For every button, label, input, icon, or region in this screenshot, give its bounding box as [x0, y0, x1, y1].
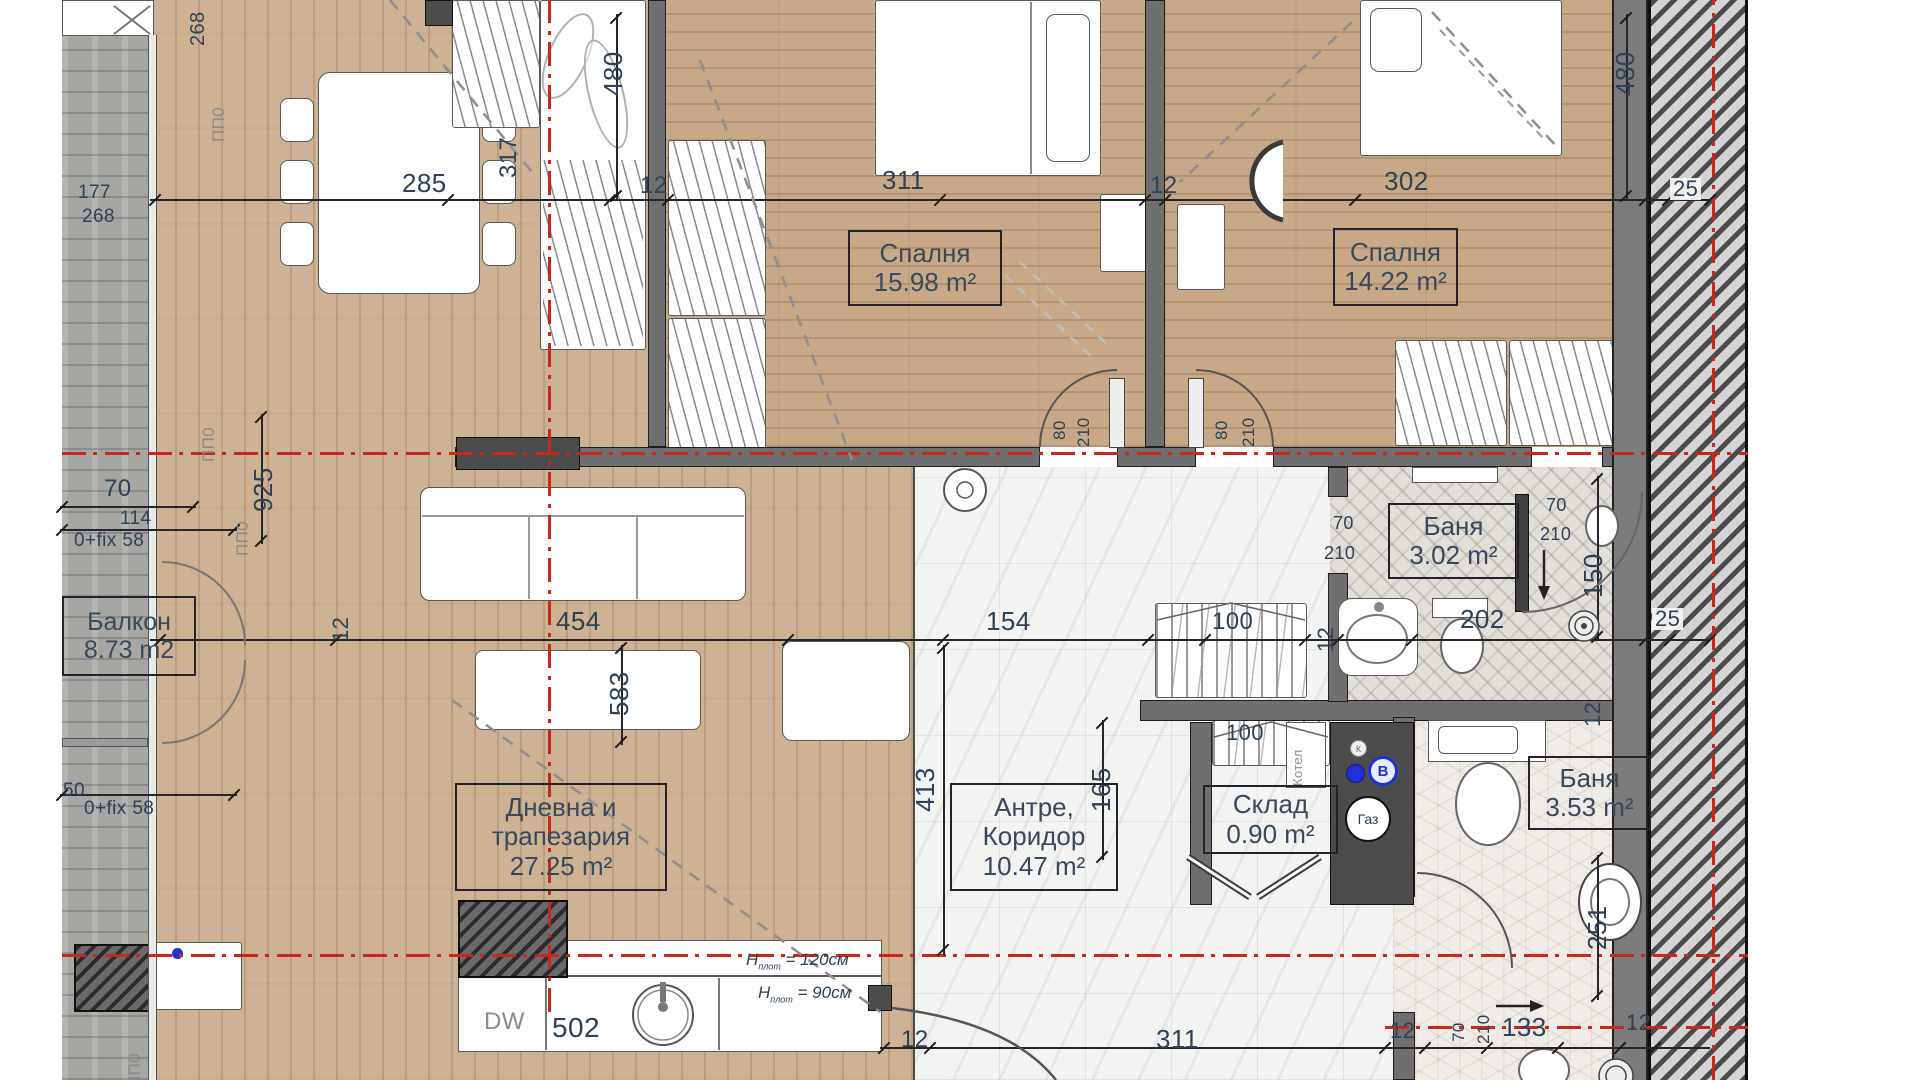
dim-label: 12 — [901, 1028, 929, 1052]
room-label-bath-1: Баня3.02 m² — [1388, 503, 1519, 579]
bed-fold-line — [1030, 2, 1032, 174]
chair — [482, 222, 516, 266]
dim-line-v — [1626, 14, 1628, 200]
room-label-line: 3.53 m² — [1530, 793, 1649, 822]
counter-divider — [718, 978, 720, 1050]
dim-label: 70 — [1546, 496, 1567, 514]
dim-label: 210 — [1075, 417, 1092, 447]
closet — [668, 140, 766, 316]
room-label-storage: Склад0.90 m² — [1203, 785, 1338, 854]
shelf-hatch — [543, 160, 643, 346]
dim-label: 70 — [1333, 514, 1354, 532]
balcony-box — [62, 0, 154, 36]
wall-living-bedroom1 — [648, 0, 666, 447]
dim-label: 0+fix 58 — [84, 799, 154, 818]
cabinet — [452, 0, 540, 128]
dim-label: ПП0 — [126, 1053, 143, 1080]
dim-line — [150, 199, 1710, 201]
dim-label: 12 — [1390, 1020, 1415, 1042]
balcony-divider — [62, 738, 148, 747]
shaft-wall-hatched — [1648, 0, 1748, 1080]
wall-cap — [425, 0, 453, 26]
dim-label: 12 — [1626, 1012, 1651, 1034]
k-valve-label: К — [1356, 744, 1361, 754]
dim-label: 311 — [882, 167, 925, 193]
dim-label: 480 — [1612, 51, 1638, 96]
room-label-line: 8.73 m2 — [64, 636, 194, 664]
dim-label: 150 — [1580, 553, 1606, 598]
dim-label: 100 — [1212, 610, 1253, 634]
valve-dot — [1346, 764, 1365, 783]
wardrobe — [1509, 340, 1617, 446]
water-valve-label: В — [1378, 763, 1389, 780]
sofa-back-line — [422, 515, 744, 517]
wardrobe — [1395, 340, 1507, 446]
room-label-balcony: Балкон8.73 m2 — [62, 596, 196, 676]
kitchen-column — [458, 900, 568, 978]
dim-label: ПП0 — [210, 107, 227, 142]
room-label-line: трапезария — [457, 822, 665, 851]
room-label-line: 15.98 m² — [850, 268, 1000, 297]
dim-label: 251 — [1584, 905, 1610, 950]
room-label-line: Склад — [1205, 790, 1336, 819]
chair — [280, 222, 314, 266]
dim-label: 80 — [1051, 420, 1068, 440]
toilet-bowl-bath2 — [1455, 762, 1521, 846]
room-label-line: Спалня — [850, 239, 1000, 268]
sofa-cushion-line — [636, 517, 638, 599]
room-label-line: Спалня — [1335, 238, 1456, 267]
dim-label: 583 — [606, 671, 632, 716]
pillow — [1370, 8, 1422, 72]
dim-line-v — [616, 14, 618, 200]
dim-label: 133 — [1502, 1014, 1547, 1040]
dim-label: 502 — [552, 1014, 600, 1042]
desk — [1177, 204, 1225, 290]
room-label-line: Коридор — [952, 822, 1116, 851]
dim-label: 114 — [120, 509, 152, 528]
door-leaf-bedroom1 — [1109, 378, 1125, 448]
room-label-line: Баня — [1530, 764, 1649, 793]
dim-label: 12 — [640, 174, 668, 198]
dim-label: ПП0 — [200, 427, 217, 462]
dim-line — [150, 639, 1710, 641]
height-note: Hплот = 120см — [746, 950, 849, 971]
nightstand — [1100, 194, 1148, 272]
axis-red-vertical — [1712, 0, 1715, 1080]
dim-label: 317 — [497, 137, 521, 178]
room-label-bath-2: Баня3.53 m² — [1528, 756, 1651, 830]
dim-line — [880, 1047, 1710, 1049]
wall-bath1-left — [1328, 467, 1348, 497]
room-label-line: 14.22 m² — [1335, 267, 1456, 296]
sofa — [420, 487, 746, 601]
dim-label: ПП0 — [234, 521, 251, 556]
dim-label: 12 — [1150, 174, 1178, 198]
room-label-line: 10.47 m² — [952, 852, 1116, 881]
dim-label: 302 — [1384, 168, 1429, 194]
room-label-line: Балкон — [64, 608, 194, 636]
room-label-line: 0.90 m² — [1205, 820, 1336, 849]
side-table — [782, 641, 910, 741]
dim-label: 25 — [1652, 608, 1683, 630]
gas-label: Газ — [1358, 811, 1379, 827]
dim-label: Котел — [1291, 749, 1304, 786]
vanity-basin — [1438, 726, 1518, 754]
dim-label: 311 — [1156, 1026, 1199, 1052]
sink-oval — [1585, 505, 1619, 547]
room-label-line: 27.25 m² — [457, 852, 665, 881]
dim-label: 210 — [1475, 1014, 1492, 1044]
closet — [668, 318, 766, 450]
floor-plan: 268177268285123174803111230248025701140+… — [0, 0, 1920, 1080]
water-valve: В — [1368, 756, 1398, 786]
dim-label: 70 — [104, 477, 132, 501]
dim-label: 50 — [63, 781, 85, 800]
dim-label: 454 — [556, 608, 601, 634]
dim-label: 12 — [1582, 702, 1604, 727]
dim-label: 268 — [188, 11, 208, 46]
shelf — [1412, 467, 1498, 483]
wall-main-h — [1273, 447, 1532, 467]
dim-label: 268 — [82, 207, 115, 226]
dim-label: 925 — [250, 467, 276, 512]
entry-door-post — [868, 985, 892, 1011]
room-label-hall-corridor: Антре,Коридор10.47 m² — [950, 783, 1118, 891]
dim-label: 80 — [1213, 420, 1230, 440]
axis-red-horizontal — [62, 954, 1748, 957]
dim-label: 202 — [1460, 606, 1505, 632]
dim-label: 285 — [402, 170, 447, 196]
height-note: Hплот = 90см — [758, 983, 851, 1004]
dim-label: 210 — [1540, 525, 1571, 543]
room-label-line: 3.02 m² — [1390, 541, 1517, 570]
k-valve: К — [1350, 740, 1367, 757]
room-label-bedroom-1: Спалня15.98 m² — [848, 230, 1002, 306]
axis-red-horizontal — [62, 452, 1748, 455]
dim-label: 100 — [1226, 722, 1264, 744]
gas-meter: Газ — [1345, 796, 1391, 842]
room-label-line: Антре, — [952, 793, 1116, 822]
dim-label: 12 — [1315, 627, 1337, 652]
dim-line — [60, 794, 237, 796]
counter-divider — [545, 978, 547, 1050]
dim-label: 177 — [78, 183, 111, 202]
sofa-cushion-line — [528, 517, 530, 599]
dim-label: 413 — [912, 767, 938, 812]
room-label-line: Дневна и — [457, 793, 665, 822]
wall-main-h — [1117, 447, 1196, 467]
balcony-glass-wall — [148, 35, 157, 1080]
dim-label: 0+fix 58 — [74, 531, 144, 550]
dim-line-v — [943, 645, 945, 955]
dim-label: 12 — [330, 617, 352, 642]
chair — [280, 160, 314, 204]
wall-bedroom-divider — [1145, 0, 1165, 447]
dim-label: 210 — [1324, 544, 1355, 562]
dim-label: 70 — [1450, 1022, 1467, 1042]
coffee-table — [475, 650, 701, 730]
dim-label: 25 — [1670, 178, 1701, 200]
chair — [280, 98, 314, 142]
door-leaf-bedroom2 — [1188, 378, 1204, 448]
dim-label: 480 — [600, 51, 626, 96]
room-label-living-dining: Дневна итрапезария27.25 m² — [455, 783, 667, 891]
axis-red-horizontal — [1385, 1026, 1748, 1029]
dim-label: 210 — [1240, 417, 1257, 447]
dim-label: DW — [484, 1010, 525, 1034]
tap-icon — [1374, 602, 1384, 612]
room-label-bedroom-2: Спалня14.22 m² — [1333, 228, 1458, 306]
pillow — [1046, 14, 1090, 162]
planter — [154, 942, 242, 1010]
dim-label: 154 — [986, 608, 1031, 634]
room-label-line: Баня — [1390, 512, 1517, 541]
